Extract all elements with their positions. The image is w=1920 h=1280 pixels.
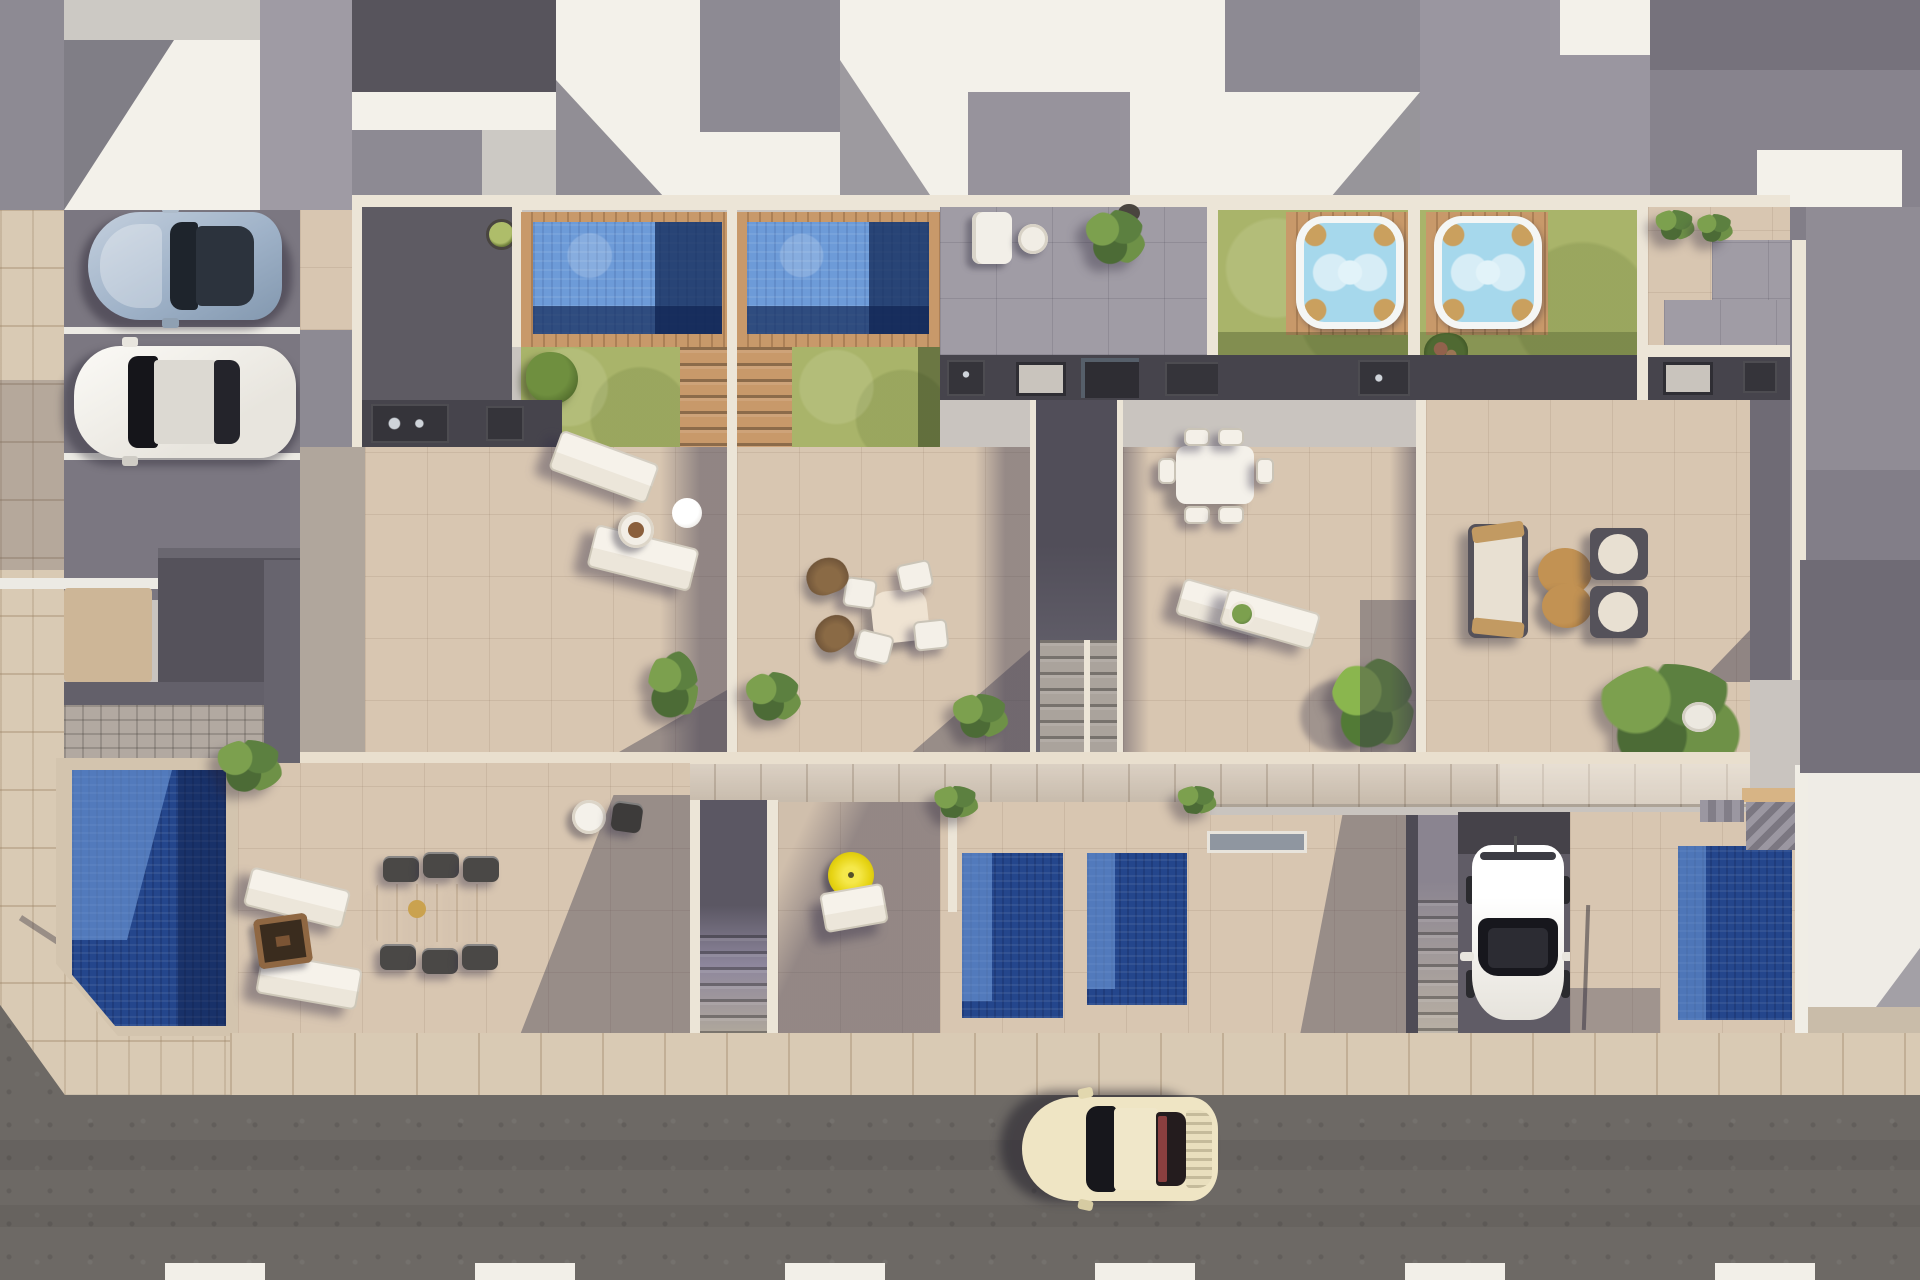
unit3-4-kitchen-band bbox=[1218, 355, 1648, 400]
unit4-white-counter bbox=[1663, 362, 1713, 395]
unit4-patio-wall-band bbox=[1648, 345, 1790, 357]
unit4-dark-counter bbox=[1743, 361, 1777, 393]
wall-unit3-unit4-top bbox=[1408, 195, 1420, 355]
unit1-deck-steps bbox=[680, 347, 730, 447]
entry-walk-shade bbox=[300, 330, 352, 447]
roof-dark-wedge bbox=[1650, 0, 1920, 70]
stair1-wall-left bbox=[690, 800, 700, 1035]
west-pool-deep-edge bbox=[178, 770, 226, 1026]
west-chair-n1 bbox=[383, 856, 419, 882]
unit3-dining-table bbox=[1176, 446, 1254, 504]
unit4-coffee-table-b bbox=[1542, 584, 1592, 628]
stair2-treads bbox=[1418, 900, 1458, 1035]
side-margin-unit1 bbox=[300, 447, 365, 763]
west-chair-s1 bbox=[380, 944, 416, 970]
unit1-tray bbox=[628, 522, 644, 538]
timber-walkway-sunlit bbox=[1500, 764, 1750, 804]
plunge-plant-b bbox=[1174, 786, 1218, 814]
stair-flight-a bbox=[1040, 640, 1084, 763]
plunge-pool-a-light bbox=[962, 853, 992, 1001]
unit3-potted-plant bbox=[1232, 604, 1252, 624]
west-garden-palm bbox=[212, 740, 284, 792]
wall-unit1-unit2 bbox=[727, 210, 737, 763]
cream-car-rear-deck bbox=[1186, 1110, 1212, 1188]
unit3-chair-s2 bbox=[1218, 506, 1244, 524]
patio-palm bbox=[1082, 210, 1146, 266]
road-dash-3 bbox=[785, 1263, 885, 1280]
silver-car-windshield bbox=[170, 222, 198, 310]
unit2-palm bbox=[948, 694, 1010, 738]
unit4-lawn-shade bbox=[1420, 332, 1637, 355]
road-dash-1 bbox=[165, 1263, 265, 1280]
patio-round-table bbox=[1018, 224, 1048, 254]
roof-gray-e bbox=[968, 92, 1130, 210]
white-sedan-roof bbox=[154, 360, 216, 444]
unit4-armchair-a-cushion bbox=[1598, 534, 1638, 574]
sidewalk-shadow-mid bbox=[0, 380, 64, 570]
unit1-pool-deep-bottom bbox=[533, 306, 722, 334]
unit1-globe-lamp bbox=[672, 498, 702, 528]
white-sedan-mirror-top bbox=[122, 337, 138, 347]
unit2-lawn-shadow-edge bbox=[918, 347, 940, 447]
unit3-left-shadow bbox=[1123, 447, 1149, 763]
unit2-palm-b bbox=[742, 672, 802, 722]
hatchback-mirror-l bbox=[1460, 952, 1474, 961]
roof-gray-a bbox=[0, 0, 64, 210]
road-dash-6 bbox=[1715, 1263, 1815, 1280]
stair-gap-wall-left bbox=[1030, 400, 1036, 763]
wall-lawn-left bbox=[1207, 195, 1218, 355]
cream-car-windshield bbox=[1086, 1106, 1116, 1192]
unit3-glass-counter bbox=[1081, 358, 1139, 398]
white-sedan-rear-glass bbox=[214, 360, 240, 444]
hatchback-rear-glass bbox=[1480, 852, 1556, 860]
stair1-treads bbox=[700, 935, 767, 1035]
patio-palm-small-b bbox=[1694, 214, 1734, 242]
unit4-palm-planter bbox=[1682, 702, 1716, 732]
sidewalk-band bbox=[230, 1033, 1920, 1095]
unit3-chair-s1 bbox=[1184, 506, 1210, 524]
road-dash-4 bbox=[1095, 1263, 1195, 1280]
road-dash-5 bbox=[1405, 1263, 1505, 1280]
plunge-wall bbox=[948, 802, 957, 912]
unit3-chair-e bbox=[1256, 458, 1274, 484]
stair1-wall-right bbox=[767, 800, 778, 1035]
unit3-chair-n1 bbox=[1184, 428, 1210, 446]
neighbor-wall bbox=[1795, 765, 1808, 1035]
unit1-side-counter bbox=[486, 406, 524, 441]
west-table-bowl bbox=[408, 900, 426, 918]
lstair-upper-steps bbox=[1700, 800, 1744, 822]
unit3-right-shadow-low bbox=[1360, 600, 1416, 763]
unit3-chair-n2 bbox=[1218, 428, 1244, 446]
unit4-armchair-b-cushion bbox=[1598, 592, 1638, 632]
unit2-pool-deep-bottom bbox=[747, 306, 929, 334]
unit3-lawn-shade bbox=[1218, 332, 1410, 355]
hatchback-interior bbox=[1488, 928, 1548, 968]
west-chair-s3 bbox=[462, 944, 498, 970]
silver-car-glass-canopy bbox=[196, 226, 254, 306]
neighbor-roof-low bbox=[1800, 680, 1920, 773]
west-fire-pit bbox=[253, 912, 313, 969]
east-pool-light bbox=[1678, 846, 1706, 1020]
aerial-render bbox=[0, 0, 1920, 1280]
entry-walk-unit1 bbox=[300, 210, 352, 330]
roof-gray-d bbox=[700, 0, 840, 132]
roof-dark-a bbox=[352, 0, 556, 92]
street-wear-streak bbox=[0, 1140, 1920, 1170]
cream-car-red-stripe bbox=[1158, 1116, 1167, 1182]
cream-car-roof bbox=[1114, 1108, 1158, 1190]
unit4-right-margin bbox=[1750, 400, 1790, 680]
bistro-chair bbox=[610, 800, 644, 834]
unit1-garden-tree bbox=[526, 352, 578, 404]
unit3-chair-w bbox=[1158, 458, 1176, 484]
silver-car-mirror-bottom bbox=[162, 318, 179, 328]
patio-palm-small-a bbox=[1652, 210, 1696, 240]
plunge-pool-b-light bbox=[1087, 853, 1115, 989]
unit2-kitchen-counter bbox=[947, 360, 985, 396]
west-chair-s2 bbox=[422, 948, 458, 974]
neighbor-roof-light bbox=[1806, 207, 1920, 470]
stair2-dark-wall bbox=[1406, 815, 1418, 1035]
plunge-plant-a bbox=[930, 786, 980, 818]
patio-corner-sofa bbox=[972, 212, 1012, 264]
skylight-strip bbox=[1207, 831, 1307, 853]
unit4-sofa-cushions bbox=[1474, 534, 1522, 628]
unit3-hot-tub-water bbox=[1304, 223, 1396, 322]
roof-gray-f bbox=[1225, 0, 1420, 92]
street-wear-streak-2 bbox=[0, 1205, 1920, 1227]
unit1-palm bbox=[648, 650, 698, 724]
sand-planter-patch bbox=[64, 588, 152, 682]
unit2-white-counter bbox=[1016, 362, 1066, 396]
neighbor-roof-dark bbox=[1800, 560, 1920, 680]
unit2-deck-steps bbox=[737, 347, 792, 447]
west-chair-n3 bbox=[463, 856, 499, 882]
unit2-chair-e bbox=[913, 618, 950, 651]
west-timber-table bbox=[376, 884, 496, 942]
bistro-table bbox=[572, 800, 606, 834]
roof-gray-b bbox=[260, 0, 352, 210]
west-chair-n2 bbox=[423, 852, 459, 878]
stair-flight-b bbox=[1090, 640, 1117, 763]
roof-white-h bbox=[1560, 0, 1650, 55]
unit3-bbq-counter bbox=[1358, 360, 1410, 396]
hatchback-antenna bbox=[1514, 836, 1517, 852]
lstair-fan-steps bbox=[1746, 802, 1798, 850]
parasol-pole bbox=[848, 872, 854, 878]
white-sedan-mirror-bottom bbox=[122, 456, 138, 466]
road-dash-2 bbox=[475, 1263, 575, 1280]
wall-unit4-patio bbox=[1637, 195, 1648, 400]
roof-white-f bbox=[1130, 0, 1225, 210]
unit1-bbq-counter bbox=[371, 404, 449, 443]
roof-white-band bbox=[352, 92, 556, 130]
wall-unit3-unit4 bbox=[1416, 400, 1426, 763]
roof-white-e bbox=[968, 0, 1130, 92]
unit4-hot-tub-water bbox=[1442, 223, 1534, 322]
